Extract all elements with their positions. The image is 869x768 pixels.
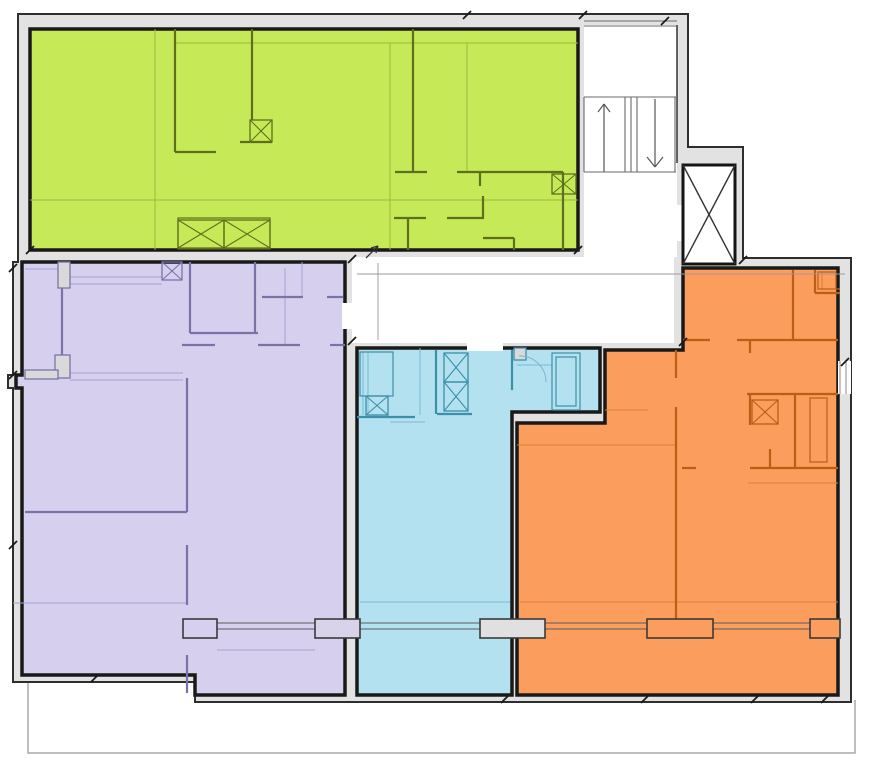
elevator-shaft bbox=[683, 165, 735, 264]
right-wall-window bbox=[838, 361, 851, 394]
unit-green-apartment bbox=[30, 29, 578, 250]
corridor-area bbox=[352, 257, 674, 343]
floor-plan-page bbox=[0, 0, 869, 768]
unit-purple-apartment bbox=[13, 262, 345, 695]
floor-plan-canvas bbox=[0, 0, 869, 768]
